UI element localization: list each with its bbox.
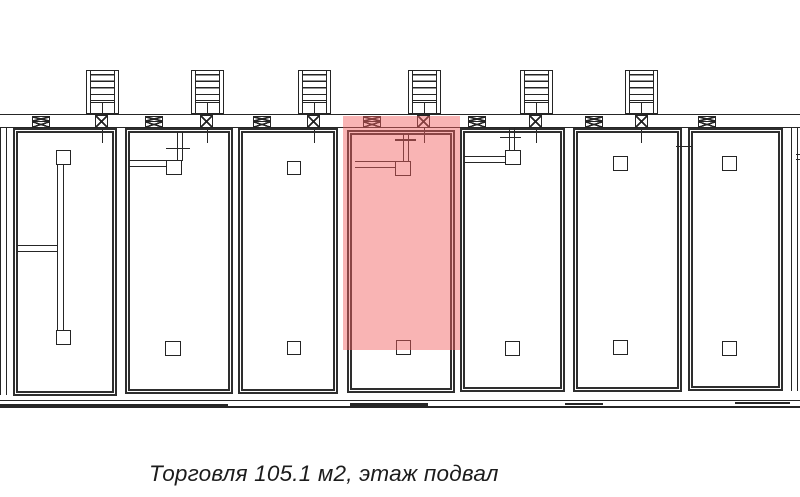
x-glyph [201, 116, 212, 128]
column-marker [165, 341, 181, 356]
column-marker [505, 150, 521, 165]
column-marker [287, 341, 301, 355]
door-x-icon [307, 115, 320, 129]
foundation-thick-segment [565, 403, 603, 405]
foundation-thick-segment [0, 404, 228, 407]
column-marker [722, 156, 737, 171]
foundation-thick-segment [350, 403, 428, 406]
room-2-outline [13, 128, 117, 396]
x-glyph [699, 122, 715, 127]
stair-steps-icon [91, 74, 114, 100]
column-marker [505, 341, 520, 356]
room-9-partial-stub [796, 154, 800, 160]
column-marker [613, 156, 628, 171]
room-1-partial-wall [0, 128, 7, 395]
stair-steps-icon [196, 74, 219, 100]
room-9-partial-wall [791, 128, 798, 391]
door-x-icon [635, 115, 648, 129]
vent-grille-icon [468, 116, 486, 129]
partition-wall [129, 160, 167, 167]
highlight-overlay[interactable] [343, 116, 460, 350]
foundation-line [0, 400, 800, 401]
column-marker [287, 161, 301, 175]
x-glyph [636, 116, 647, 128]
vent-grille-icon [698, 116, 716, 129]
riser-stub-wall [177, 132, 184, 161]
stair-steps-icon [525, 74, 548, 100]
column-marker [56, 150, 71, 165]
stair-steps-icon [413, 74, 436, 100]
x-glyph [530, 116, 541, 128]
stair-rail [436, 71, 437, 113]
riser-stub-wall [509, 128, 516, 151]
x-glyph [96, 116, 107, 128]
stair-steps-icon [630, 74, 653, 100]
door-x-icon [529, 115, 542, 129]
x-glyph [308, 116, 319, 128]
vent-grille-icon [253, 116, 271, 129]
vent-grille-icon [32, 116, 50, 129]
column-marker [166, 160, 182, 175]
stair-rail [219, 71, 220, 113]
floor-plan [0, 0, 800, 497]
stair-steps-icon [303, 74, 326, 100]
plan-caption: Торговля 105.1 м2, этаж подвал [149, 461, 499, 487]
door-x-icon [200, 115, 213, 129]
riser-cross-icon [500, 137, 521, 139]
column-marker [722, 341, 737, 356]
column-marker [613, 340, 628, 355]
x-glyph [254, 122, 270, 127]
partition-wall [464, 156, 506, 163]
x-glyph [586, 122, 602, 127]
x-glyph [146, 122, 162, 127]
column-marker [56, 330, 71, 345]
vent-grille-icon [585, 116, 603, 129]
riser-cross-icon [166, 148, 190, 150]
partition-wall [17, 245, 58, 252]
x-glyph [469, 122, 485, 127]
stair-rail [548, 71, 549, 113]
stair-rail [326, 71, 327, 113]
stair-rail [653, 71, 654, 113]
foundation-thick-segment [735, 402, 790, 404]
x-glyph [33, 122, 49, 127]
wall-notch-line [676, 146, 692, 147]
floor-plan-canvas: Торговля 105.1 м2, этаж подвал [0, 0, 800, 497]
stair-rail [114, 71, 115, 113]
vent-grille-icon [145, 116, 163, 129]
door-x-icon [95, 115, 108, 129]
